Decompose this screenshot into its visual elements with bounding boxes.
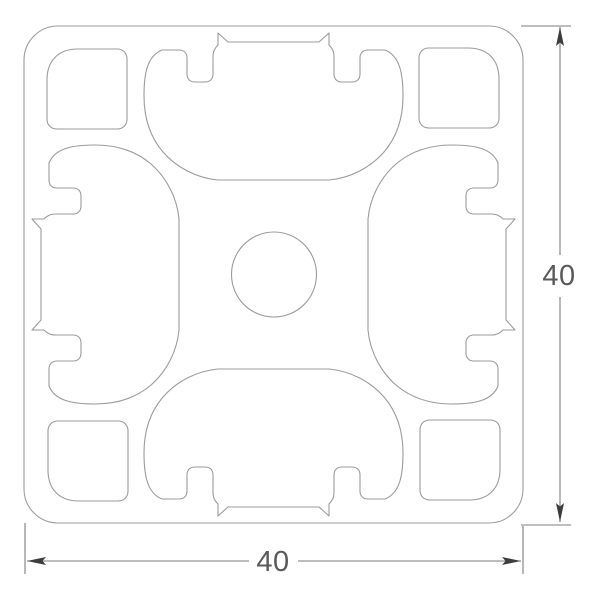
extrusion-profile-drawing: 40 40 [0, 0, 600, 600]
profile-geometry [24, 26, 523, 523]
corner-cavity-top-right [419, 48, 499, 128]
center-bore-hole [232, 232, 317, 317]
technical-drawing-canvas: 40 40 [0, 0, 600, 600]
corner-cavity-bottom-left [48, 421, 128, 501]
dimension-arrowheads [27, 27, 564, 565]
corner-cavity-top-left [47, 49, 127, 129]
slot-cavity-top [144, 33, 403, 180]
profile-outer-contour [24, 26, 523, 523]
dimension-labels: 40 40 [256, 260, 575, 578]
width-dimension-label: 40 [256, 546, 289, 578]
slot-cavity-right [368, 145, 515, 404]
height-dimension-label: 40 [542, 260, 575, 292]
corner-cavity-bottom-right [420, 420, 500, 500]
dimension-lines [25, 26, 571, 574]
slot-cavity-bottom [144, 369, 403, 516]
slot-cavity-left [32, 145, 179, 404]
